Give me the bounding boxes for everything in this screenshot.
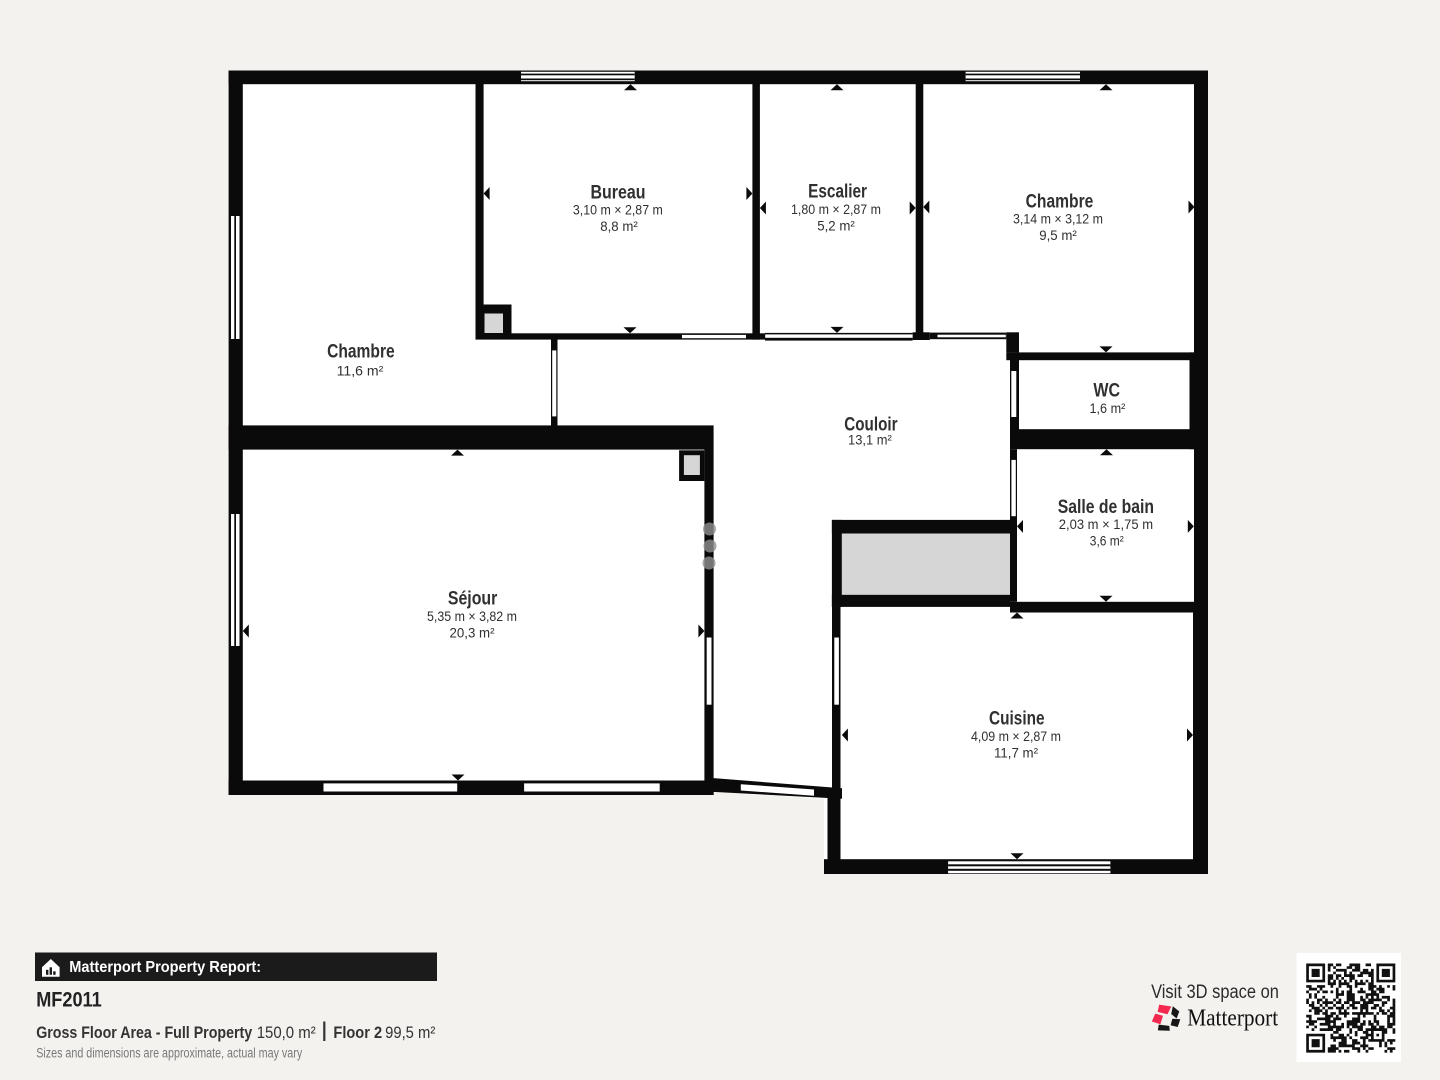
svg-text:MF2011: MF2011: [36, 988, 102, 1011]
svg-text:2,03 m × 1,75 m: 2,03 m × 1,75 m: [1059, 517, 1153, 532]
svg-text:Chambre: Chambre: [1026, 191, 1094, 212]
svg-text:20,3 m²: 20,3 m²: [450, 626, 495, 641]
svg-text:Séjour: Séjour: [448, 589, 498, 610]
svg-text:WC: WC: [1093, 381, 1120, 402]
svg-text:Matterport Property Report:: Matterport Property Report:: [69, 959, 261, 976]
svg-text:Bureau: Bureau: [591, 182, 646, 203]
svg-text:5,35 m × 3,82 m: 5,35 m × 3,82 m: [427, 609, 517, 624]
svg-text:150,0 m²: 150,0 m²: [257, 1023, 316, 1042]
svg-text:Gross Floor Area - Full Proper: Gross Floor Area - Full Property: [36, 1023, 252, 1042]
svg-text:5,2 m²: 5,2 m²: [817, 219, 855, 234]
svg-text:3,10 m × 2,87 m: 3,10 m × 2,87 m: [573, 203, 663, 218]
svg-text:Salle de bain: Salle de bain: [1058, 497, 1154, 518]
svg-text:Chambre: Chambre: [327, 342, 395, 363]
svg-text:99,5 m²: 99,5 m²: [385, 1023, 435, 1042]
svg-text:Cuisine: Cuisine: [989, 708, 1045, 729]
svg-text:11,7 m²: 11,7 m²: [994, 746, 1038, 761]
svg-text:Floor 2: Floor 2: [333, 1023, 382, 1042]
svg-text:Escalier: Escalier: [808, 182, 867, 203]
svg-text:Visit 3D space on: Visit 3D space on: [1151, 982, 1279, 1003]
svg-text:8,8 m²: 8,8 m²: [600, 219, 638, 234]
svg-text:11,6 m²: 11,6 m²: [337, 363, 384, 378]
svg-text:1,80 m × 2,87 m: 1,80 m × 2,87 m: [791, 202, 881, 217]
svg-text:4,09 m × 2,87 m: 4,09 m × 2,87 m: [971, 729, 1061, 744]
svg-text:1,6 m²: 1,6 m²: [1090, 401, 1126, 416]
svg-text:Sizes and dimensions are appro: Sizes and dimensions are approximate, ac…: [36, 1046, 302, 1061]
svg-text:13,1 m²: 13,1 m²: [848, 433, 892, 448]
svg-text:3,14 m × 3,12 m: 3,14 m × 3,12 m: [1013, 212, 1103, 227]
svg-text:9,5 m²: 9,5 m²: [1039, 228, 1077, 243]
svg-text:3,6 m²: 3,6 m²: [1090, 533, 1124, 548]
svg-text:Matterport: Matterport: [1187, 1005, 1278, 1031]
